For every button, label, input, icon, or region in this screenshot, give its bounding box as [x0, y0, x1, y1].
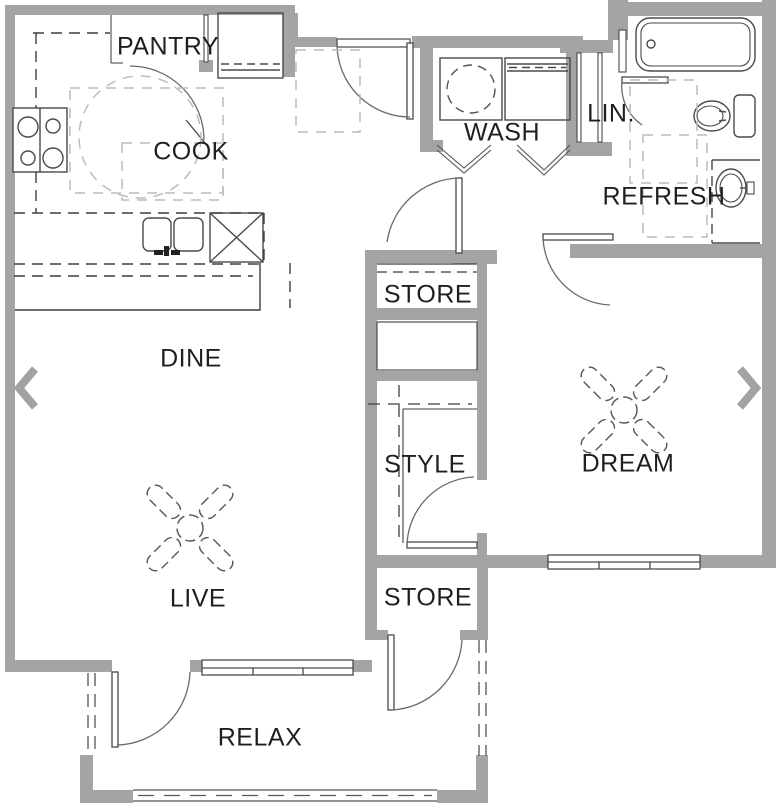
room-label-relax: RELAX	[218, 724, 302, 753]
chevron-left-icon[interactable]	[11, 364, 41, 412]
laundry-fixtures	[440, 58, 570, 120]
kitchen-sink-icon	[143, 218, 203, 256]
linen-closet-lines	[577, 53, 602, 142]
tub-wall	[619, 30, 626, 72]
ceiling-fan-dream-icon	[578, 364, 671, 457]
washer-icon	[440, 58, 502, 120]
room-label-store-patio: STORE	[384, 584, 472, 613]
dishwasher-icon	[210, 213, 263, 262]
room-label-wash: WASH	[464, 119, 540, 148]
room-label-refresh: REFRESH	[603, 183, 726, 212]
room-label-cook: COOK	[153, 138, 229, 167]
entry-threshold	[337, 39, 410, 47]
window-dream	[548, 555, 700, 569]
floor-plan: PANTRY COOK WASH LIN. REFRESH DINE STORE…	[0, 0, 776, 810]
ceiling-fan-live-icon	[144, 482, 237, 575]
patio-door-store	[388, 635, 462, 710]
closet-style-door	[407, 477, 477, 548]
room-label-live: LIVE	[170, 585, 226, 614]
room-label-dine: DINE	[160, 345, 222, 374]
dryer-icon	[505, 58, 570, 120]
room-label-dream: DREAM	[582, 450, 675, 479]
pantry-door	[130, 66, 205, 143]
room-label-style: STYLE	[384, 451, 466, 480]
refrigerator-icon	[218, 13, 283, 78]
windows	[202, 39, 700, 675]
room-label-linen: LIN.	[587, 100, 635, 129]
room-label-pantry: PANTRY	[117, 33, 219, 62]
bathtub-icon	[636, 18, 755, 71]
stove-icon	[13, 108, 67, 172]
chevron-right-icon[interactable]	[734, 364, 764, 412]
toilet-icon	[694, 95, 755, 137]
entry-door	[337, 43, 413, 119]
hall-door	[387, 178, 462, 253]
bifold-doors-icon	[437, 145, 570, 175]
patio-door-live	[112, 672, 190, 747]
floor-plan-drawing	[0, 0, 776, 810]
interior-walls	[199, 13, 762, 640]
room-label-store-hall: STORE	[384, 281, 472, 310]
window-live	[202, 660, 353, 675]
